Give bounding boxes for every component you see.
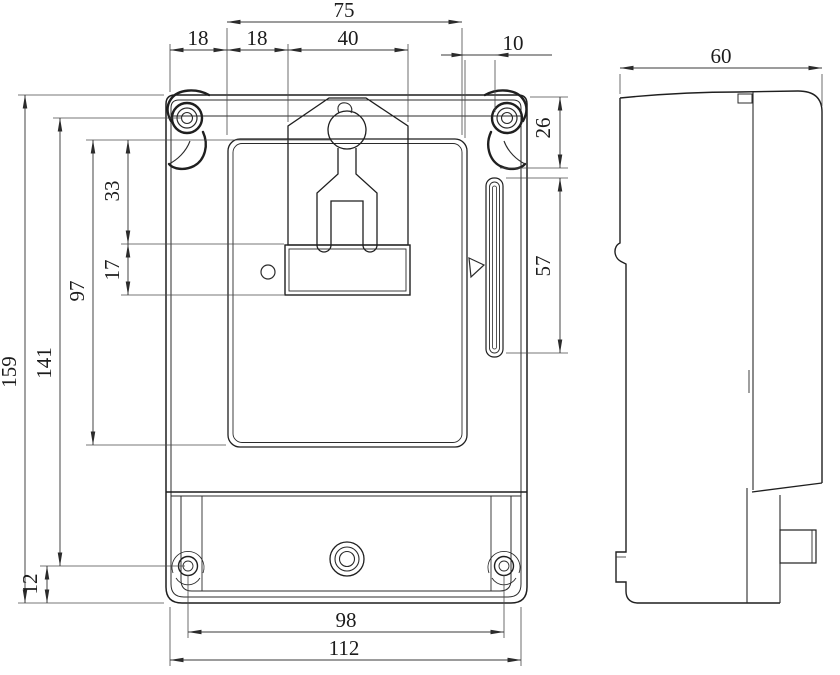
nameplate-inner [289, 249, 406, 291]
extension-lines [18, 28, 822, 666]
dim-label-bottom-overall: 112 [329, 636, 360, 660]
dim-label-ear-height: 26 [531, 118, 555, 139]
side-top-clip [738, 94, 752, 103]
dim-label-edge-offset: 18 [188, 26, 209, 50]
side-cover-bottom-slant [752, 483, 822, 492]
meter-dimension-drawing: 75 18 18 40 10 159 141 97 33 17 12 26 57… [0, 0, 840, 675]
dim-label-plate-height: 17 [100, 260, 124, 281]
seal-screw [261, 265, 275, 279]
dim-label-overall-height: 159 [0, 356, 21, 388]
inner-panel-inner [233, 144, 462, 443]
terminal-cover-face [181, 496, 511, 591]
ear-hook-top-right [488, 132, 525, 169]
side-rail-mid [490, 182, 500, 353]
dim-label-panel-to-plate: 33 [100, 181, 124, 202]
side-view [615, 91, 822, 603]
ear-hook-top-left [169, 132, 206, 169]
side-outline [615, 91, 822, 603]
dim-label-panel-height: 97 [65, 281, 89, 302]
side-rail-inner [493, 186, 497, 349]
triangle-marker [469, 258, 484, 277]
dim-label-bracket-width: 40 [338, 26, 359, 50]
dim-label-depth: 60 [711, 44, 732, 68]
ear-hook-inner-top-right [504, 141, 525, 164]
mount-hole-top-right [502, 113, 513, 124]
inner-panel-outer [228, 139, 467, 447]
fork-slot [317, 148, 377, 252]
dim-label-ear-width: 10 [503, 31, 524, 55]
side-terminal-block [780, 530, 816, 563]
dim-label-bracket-offset: 18 [247, 26, 268, 50]
nameplate-outer [285, 245, 410, 295]
mount-hole-mid-top-right [497, 108, 517, 128]
front-view [166, 90, 527, 603]
hanging-bracket [288, 98, 408, 245]
body-outline-outer [166, 95, 527, 603]
cover-screw-center [330, 542, 364, 576]
side-rail-outer [486, 178, 503, 357]
dim-label-top-overall: 75 [334, 0, 355, 22]
drawing-canvas: 75 18 18 40 10 159 141 97 33 17 12 26 57… [0, 0, 840, 675]
mount-hole-top-left [182, 113, 193, 124]
mount-ear-top-left [168, 90, 209, 168]
dim-label-screw-to-bottom: 12 [18, 574, 42, 595]
dim-label-rail-length: 57 [531, 256, 555, 277]
dim-label-screw-span-vertical: 141 [32, 347, 56, 379]
body-outline-inner [171, 100, 521, 597]
dimension-labels: 75 18 18 40 10 159 141 97 33 17 12 26 57… [0, 0, 732, 660]
ear-hook-inner-top-left [169, 141, 190, 164]
mount-ear-top-right [485, 90, 526, 168]
dim-label-bottom-screw-span: 98 [336, 608, 357, 632]
